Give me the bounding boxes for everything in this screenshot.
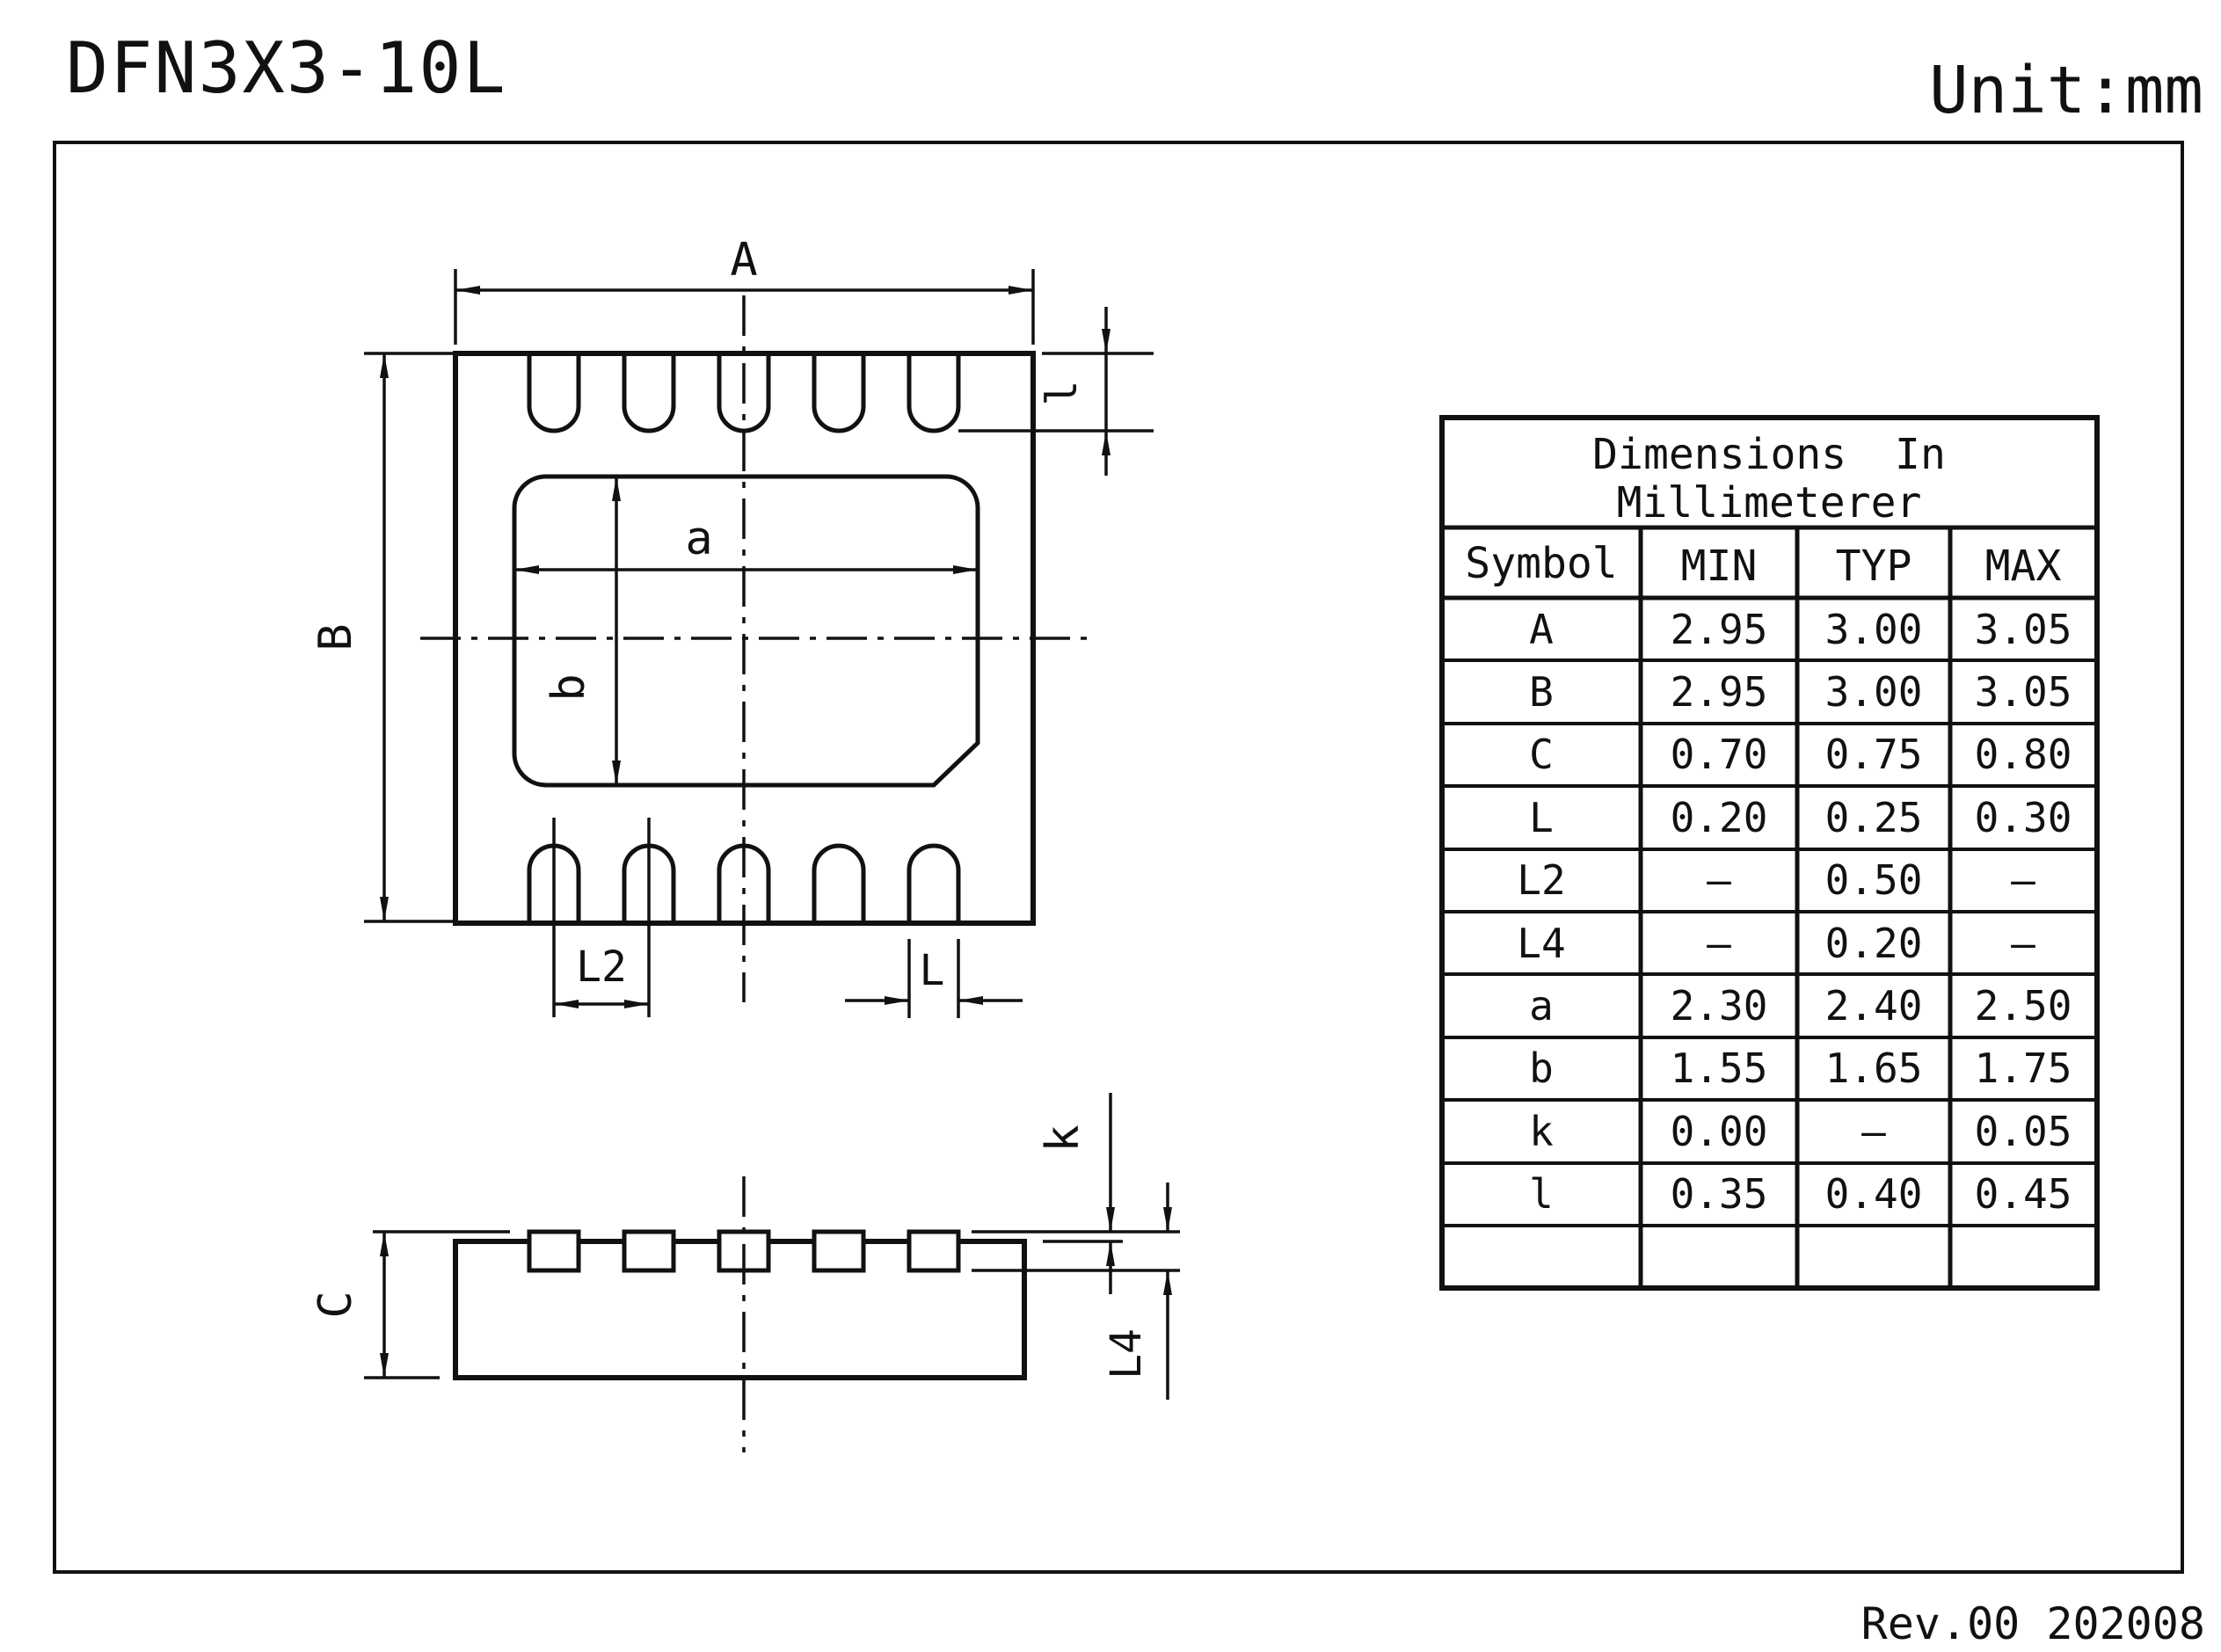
table-cell: 3.05 [1975, 668, 2072, 716]
table-row: L4 – 0.20 – [1517, 920, 2035, 967]
table-title-line2: Millimeterer [1617, 478, 1922, 528]
table-symbol: B [1529, 668, 1554, 716]
table-cell: 0.70 [1671, 731, 1768, 778]
table-cell: – [1707, 856, 1731, 904]
table-cell: 0.00 [1671, 1108, 1768, 1155]
bottom-pad [909, 846, 958, 923]
dim-k: k [1037, 1093, 1110, 1294]
table-cell: 1.65 [1825, 1044, 1923, 1092]
table-title-line1: Dimensions In [1592, 430, 1946, 479]
table-header-typ: TYP [1836, 542, 1912, 591]
top-pad [624, 353, 674, 431]
table-row: C 0.70 0.75 0.80 [1529, 731, 2072, 778]
table-header-max: MAX [1985, 542, 2062, 591]
table-cell: 0.20 [1671, 794, 1768, 841]
table-cell: 0.45 [1975, 1170, 2072, 1218]
table-cell: 0.50 [1825, 856, 1923, 904]
table-cell: 1.55 [1671, 1044, 1768, 1092]
table-symbol: L4 [1517, 920, 1565, 967]
dim-L2: L2 [554, 818, 649, 1017]
unit-label: Unit:mm [1929, 53, 2203, 128]
side-view: C k L4 [309, 1093, 1180, 1452]
dim-k-label: k [1037, 1124, 1089, 1152]
table-cell: 0.35 [1671, 1170, 1768, 1218]
table-cell: 3.00 [1825, 668, 1923, 716]
table-cell: 0.30 [1975, 794, 2072, 841]
side-pad [529, 1232, 579, 1270]
table-row: k 0.00 – 0.05 [1529, 1108, 2072, 1155]
table-cell: 1.75 [1975, 1044, 2072, 1092]
table-symbol: a [1529, 982, 1554, 1030]
table-symbol: k [1529, 1108, 1554, 1155]
table-cell: 0.75 [1825, 731, 1923, 778]
table-row: b 1.55 1.65 1.75 [1529, 1044, 2072, 1092]
table-cell: 2.95 [1671, 668, 1768, 716]
table-cell: 2.30 [1671, 982, 1768, 1030]
table-cell: 0.80 [1975, 731, 2072, 778]
table-row: L 0.20 0.25 0.30 [1529, 794, 2072, 841]
table-cell: 0.05 [1975, 1108, 2072, 1155]
side-pad [814, 1232, 863, 1270]
table-row: A 2.95 3.00 3.05 [1529, 606, 2072, 653]
table-symbol: L [1529, 794, 1554, 841]
table-row: a 2.30 2.40 2.50 [1529, 982, 2072, 1030]
table-row: L2 – 0.50 – [1517, 856, 2035, 904]
dimensions-table: Dimensions In Millimeterer Symbol MIN TY… [1442, 418, 2097, 1288]
table-symbol: b [1529, 1044, 1554, 1092]
dim-l-label: l [1038, 381, 1087, 406]
dim-b: b [543, 477, 616, 785]
table-symbol: C [1529, 731, 1554, 778]
thermal-pad-outline [514, 477, 978, 785]
dim-lead-l: l [958, 307, 1154, 476]
dim-B-label: B [309, 623, 362, 651]
table-header-min: MIN [1681, 542, 1758, 591]
table-cell: 2.95 [1671, 606, 1768, 653]
dim-L4-label: L4 [1102, 1328, 1151, 1379]
table-header-symbol: Symbol [1465, 539, 1617, 588]
table-cell: 2.50 [1975, 982, 2072, 1030]
top-pad [814, 353, 863, 431]
table-cell: – [2011, 920, 2035, 967]
table-cell: 0.20 [1825, 920, 1923, 967]
dim-L2-label: L2 [576, 942, 627, 992]
table-cell: – [2011, 856, 2035, 904]
dim-b-label: b [543, 673, 595, 701]
table-cell: 3.00 [1825, 606, 1923, 653]
top-view: A B a b l [309, 234, 1154, 1018]
table-row: l 0.35 0.40 0.45 [1529, 1170, 2072, 1218]
table-cell: 3.05 [1975, 606, 2072, 653]
table-row: B 2.95 3.00 3.05 [1529, 668, 2072, 716]
table-cell: 0.40 [1825, 1170, 1923, 1218]
table-cell: – [1707, 920, 1731, 967]
table-symbol: l [1529, 1170, 1554, 1218]
table-cell: 2.40 [1825, 982, 1923, 1030]
bottom-pad [814, 846, 863, 923]
dim-a-label: a [685, 513, 712, 565]
package-outline-drawing: DFN3X3-10L Unit:mm Rev.00 202008 A [0, 0, 2221, 1652]
table-symbol: A [1529, 606, 1554, 653]
table-symbol: L2 [1517, 856, 1565, 904]
side-pad [624, 1232, 674, 1270]
page-title: DFN3X3-10L [66, 27, 507, 109]
dim-a: a [514, 513, 978, 570]
table-cell: 0.25 [1825, 794, 1923, 841]
dim-L-label: L [920, 946, 945, 995]
side-pad [909, 1232, 958, 1270]
revision-label: Rev.00 202008 [1861, 1598, 2205, 1649]
dim-C: C [309, 1232, 440, 1378]
dim-L: L [845, 939, 1023, 1018]
dim-C-label: C [309, 1291, 362, 1318]
top-pad [909, 353, 958, 431]
top-pad [529, 353, 579, 431]
dim-A-label: A [730, 234, 757, 287]
table-cell: – [1861, 1108, 1886, 1155]
